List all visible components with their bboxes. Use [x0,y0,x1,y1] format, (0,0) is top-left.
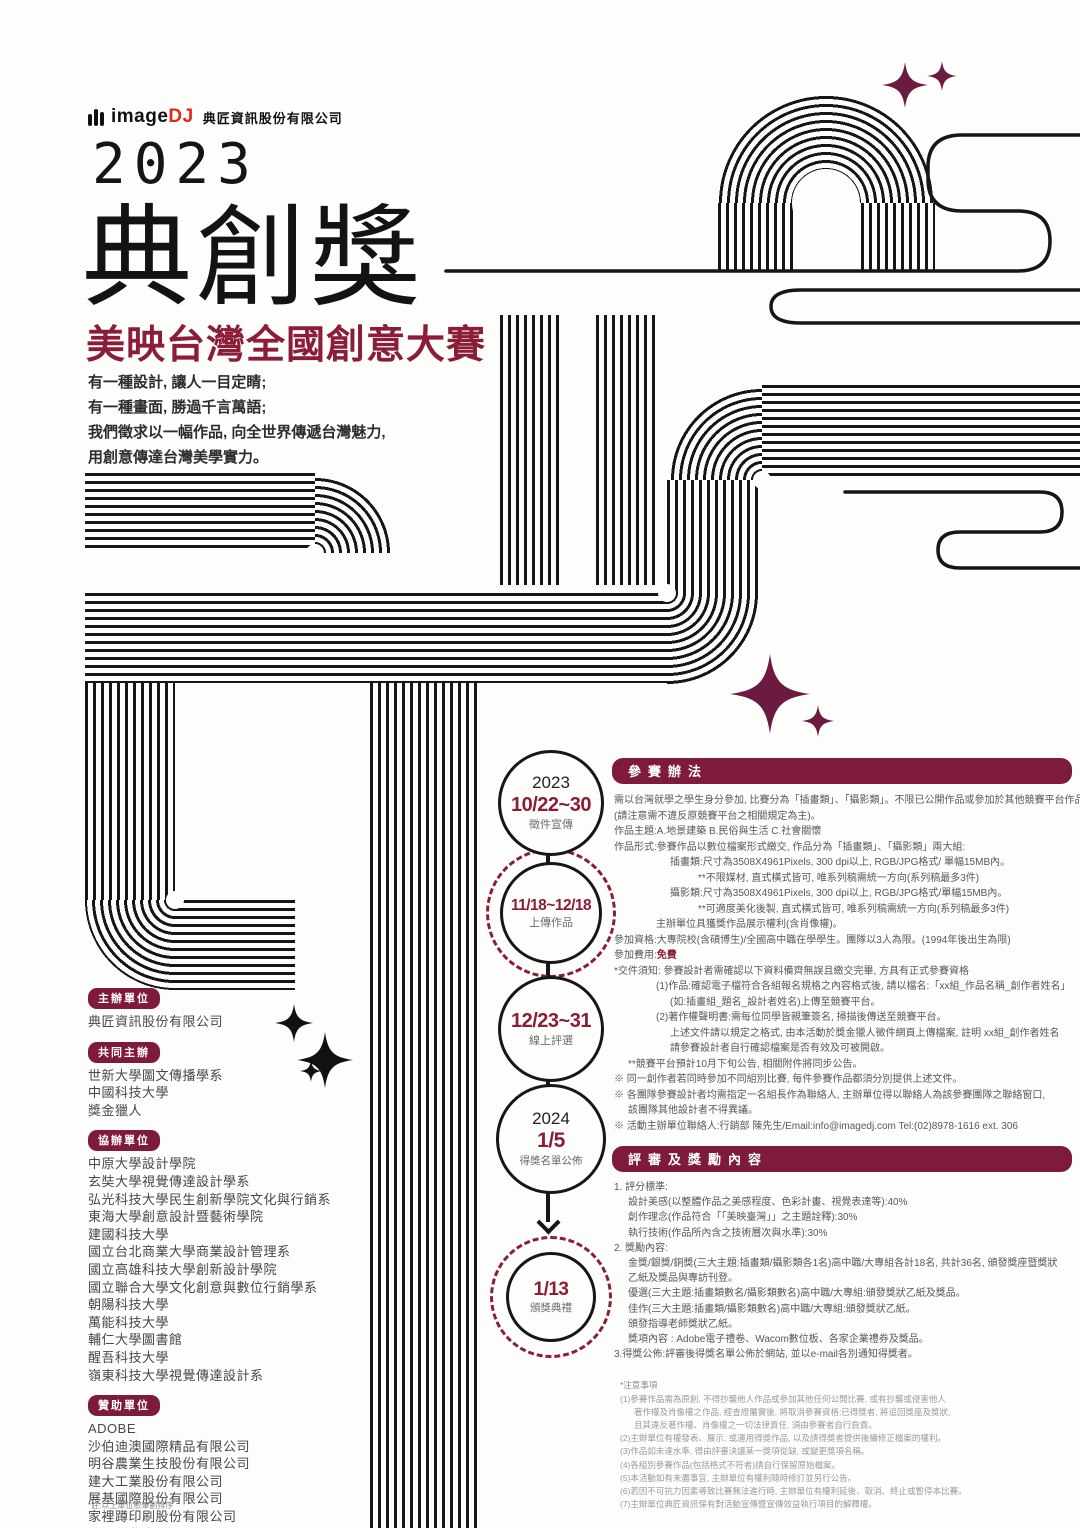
entry-line-text: 插畫類:尺寸為3508X4961Pixels, 300 dpi以上, RGB/J… [670,857,1010,868]
note-line: (2)主辦單位有權發表、展示, 或運用得獎作品, 以及請得獎者提供後續修正檔案的… [620,1432,1080,1445]
organizer-group-cohost: 共同主辦 世新大學圖文傳播學系中國科技大學獎金獵人 [88,1042,388,1120]
stripe-band-hook [175,900,295,990]
arch-hollow [792,169,860,237]
judging-line: 金獎/銀獎/銅獎(三大主題:插畫類/攝影類各1名)高中職/大專組各計18名, 共… [614,1256,1080,1271]
judging-line: 獎項內容 : Adobe電子禮卷、Wacom數位板、各家企業禮券及獎品。 [614,1332,1080,1347]
judging-line: 執行技術(作品所內含之技術層次與水準):30% [614,1226,1080,1241]
sponsor-list: ADOBE沙伯迪澳國際精品有限公司明谷農業生技股份有限公司建大工業股份有限公司展… [88,1420,388,1528]
timeline-date: 11/18~12/18 [511,896,591,915]
entry-line-text: ※ 同一創作者若同時參加不同組別比賽, 每件參賽作品都須分別提供上述文件。 [614,1074,962,1085]
entry-heading-banner: 參賽辦法 [612,758,1072,784]
sponsor-badge: 贊助單位 [88,1395,160,1416]
organizer-item: 中國科技大學 [88,1084,388,1102]
judging-line-text: 金獎/銀獎/銅獎(三大主題:插畫類/攝影類各1名)高中職/大專組各計18名, 共… [628,1258,1057,1269]
judging-line: 乙紙及獎品與專訪刊登。 [614,1271,1080,1286]
meander-top [446,135,1080,271]
note-line-text: (3)作品如未達水準, 得由評審決議某一獎項從缺, 或變更獎項名稱。 [620,1446,869,1456]
organizer-item: 沙伯迪澳國際精品有限公司 [88,1438,388,1456]
timeline-date: 1/5 [537,1128,565,1154]
entry-line-text: 請參賽設計者自行確認檔案是否有效及可被開啟。 [670,1043,890,1054]
timeline-step-5: 1/13 頒獎典禮 [506,1252,596,1342]
entry-line: **不限媒材, 直式橫式皆可, 唯系列稿需統一方向(系列稿最多3件) [614,871,1080,887]
organizer-item: 國立聯合大學文化創意與數位行銷學系 [88,1279,388,1297]
judging-line-text: 設計美感(以整體作品之美感程度、色彩計畫、視覺表達等):40% [628,1197,907,1208]
judging-line: 優選(三大主題:插畫類數名/攝影類數名)高中職/大專組:頒發獎狀乙紙及獎品。 [614,1286,1080,1301]
timeline-label: 得獎名單公佈 [520,1155,583,1169]
entry-line: 需以台灣就學之學生身分參加, 比賽分為「插畫類」、「攝影類」。不限已公開作品或參… [614,793,1080,809]
stripe-up-vertical [667,480,762,593]
entry-line-accent: 免費 [657,950,677,961]
poster-title: 典創獎 [82,196,424,323]
note-line: 且其違反著作權、肖像權之一切法律責任, 須由參賽者自行負責。 [620,1419,1080,1432]
entry-line: 上述文件請以規定之格式, 由本活動於獎金獵人徵件網頁上傳檔案, 註明 xx組_創… [614,1026,1080,1042]
entry-line: **可適度美化後製, 直式橫式皆可, 唯系列稿需統一方向(系列稿最多3件) [614,902,1080,918]
meander-right [845,492,1080,568]
note-line: 著作權及肖像權之作品, 經查證屬實後, 將取消參賽資格;已得獎者, 將追回獎座及… [620,1406,1080,1419]
note-line-text: (1)參賽作品需為原創, 不得抄襲他人作品或參加其他任何公開比賽, 或有抄襲或侵… [620,1394,946,1404]
organizer-item: 獎金獵人 [88,1102,388,1120]
meander-pill [771,290,1080,323]
coorg-list: 中原大學設計學院玄奘大學視覺傳達設計學系弘光科技大學民生創新學院文化與行銷系東海… [88,1155,388,1384]
organizer-item: 中原大學設計學院 [88,1155,388,1173]
entry-line: 作品主題:A.地景建築 B.民俗與生活 C.社會關懷 [614,824,1080,840]
judging-line-text: 獎項內容 : Adobe電子禮卷、Wacom數位板、各家企業禮券及獎品。 [628,1334,929,1345]
entry-line: 攝影類:尺寸為3508X4961Pixels, 300 dpi以上, RGB/J… [614,886,1080,902]
stripe-corner-topleft-down [315,473,395,553]
entry-line: **競賽平台預計10月下旬公告, 相關附件將同步公告。 [614,1057,1080,1073]
poster: imageDJ 典匠資訊股份有限公司 2023 典創獎 美映台灣全國創意大賽 有… [0,0,1080,1528]
entry-line-text: 參加資格:大專院校(含碩博生)/全國高中職在學學生。團隊以3人為限。(1994年… [614,935,1011,946]
entry-line: ※ 活動主辦單位聯絡人:行銷部 陳先生/Email:info@imagedj.c… [614,1119,1080,1135]
judging-line: 創作理念(作品符合「「美映臺灣」」之主題詮釋):30% [614,1210,1080,1225]
entry-line: (1)作品:確認電子檔符合各組報名規格之內容格式後, 請以檔名:「xx組_作品名… [614,979,1080,995]
sparkle-icon [802,704,834,738]
note-line: (7)主辦單位典匠資訊保有對活動宣傳暨宣傳效益執行項目的解釋權。 [620,1498,1080,1511]
organizer-group-coorg: 協辦單位 中原大學設計學院玄奘大學視覺傳達設計學系弘光科技大學民生創新學院文化與… [88,1130,388,1384]
tagline-line: 我們徵求以一幅作品, 向全世界傳遞台灣魅力, [88,420,386,445]
timeline-step-1: 2023 10/22~30 徵件宣傳 [498,750,604,856]
note-line-text: 著作權及肖像權之作品, 經查證屬實後, 將取消參賽資格;已得獎者, 將追回獎座及… [634,1407,950,1417]
poster-subtitle: 美映台灣全國創意大賽 [86,314,486,370]
entry-line-text: 需以台灣就學之學生身分參加, 比賽分為「插畫類」、「攝影類」。不限已公開作品或參… [614,795,1080,806]
entry-line-text: **競賽平台預計10月下旬公告, 相關附件將同步公告。 [628,1059,862,1070]
entry-line-text: (2)著作權聲明書:需每位同學皆親筆簽名, 掃描後傳送至競賽平台。 [656,1012,947,1023]
entry-line: 主辦單位具獲獎作品展示權利(含肖像權)。 [614,917,1080,933]
sparkle-icon [927,60,957,92]
coorg-badge: 協辦單位 [88,1130,160,1151]
judging-line-text: 1. 評分標準: [614,1182,668,1193]
turn-hollow [753,471,771,489]
entry-line-text: 該團隊其他設計者不得異議。 [628,1105,758,1116]
entry-line-text: 攝影類:尺寸為3508X4961Pixels, 300 dpi以上, RGB/J… [670,888,1007,899]
sparkle-icon [730,650,810,738]
organizer-item: 弘光科技大學民生創新學院文化與行銷系 [88,1191,388,1209]
note-line-text: (7)主辦單位典匠資訊保有對活動宣傳暨宣傳效益執行項目的解釋權。 [620,1499,877,1509]
entry-line-text: **不限媒材, 直式橫式皆可, 唯系列稿需統一方向(系列稿最多3件) [698,873,979,884]
judging-line-text: 乙紙及獎品與專訪刊登。 [628,1273,738,1284]
judging-line-text: 執行技術(作品所內含之技術層次與水準):30% [628,1228,827,1239]
timeline-label: 線上評選 [529,1034,573,1048]
timeline-step-2: 11/18~12/18 上傳作品 [500,862,602,964]
turn-hollow [306,544,324,562]
entry-line-text: ※ 活動主辦單位聯絡人:行銷部 陳先生/Email:info@imagedj.c… [614,1121,1018,1132]
entry-line: ※ 同一創作者若同時參加不同組別比賽, 每件參賽作品都須分別提供上述文件。 [614,1072,1080,1088]
host-list: 典匠資訊股份有限公司 [88,1013,388,1031]
entry-line: 該團隊其他設計者不得異議。 [614,1103,1080,1119]
entry-line: (如:插畫組_題名_設計者姓名)上傳至競賽平台。 [614,995,1080,1011]
stripe-corner-hook [85,900,175,990]
judging-line: 頒發指導老師獎狀乙紙。 [614,1317,1080,1332]
stripe-leg-a [500,315,564,585]
logo-wordmark: imageDJ [111,106,194,128]
entry-line: 參加費用:免費 [614,948,1080,964]
judging-line: 1. 評分標準: [614,1180,1080,1195]
note-line: (3)作品如未達水準, 得由評審決議某一獎項從缺, 或變更獎項名稱。 [620,1445,1080,1458]
logo-image-text: image [111,106,168,127]
host-badge: 主辦單位 [88,988,160,1009]
note-line: (6)若因不可抗力因素導致比賽無法進行時, 主辦單位有權利延後、取消、終止或暫停… [620,1485,1080,1498]
entry-line-text: *交件須知: 參賽設計者需確認以下資料備齊無誤且繳交完畢, 方具有正式參賽資格 [614,966,969,977]
note-line-text: 且其違反著作權、肖像權之一切法律責任, 須由參賽者自行負責。 [634,1420,877,1430]
organizers-footnote: *註:以上單位依筆劃排序 [88,1500,173,1511]
entry-line: ※ 各團隊參賽設計者均需指定一名組長作為聯絡人, 主辦單位得以聯絡人為該參賽團隊… [614,1088,1080,1104]
organizer-item: 國立高雄科技大學創新設計學院 [88,1261,388,1279]
entry-line: (請注意需不違反原競賽平台之相關規定為主)。 [614,809,1080,825]
note-line: (1)參賽作品需為原創, 不得抄襲他人作品或參加其他任何公開比賽, 或有抄襲或侵… [620,1393,1080,1406]
timeline-label: 上傳作品 [529,916,573,930]
entry-line: 請參賽設計者自行確認檔案是否有效及可被開啟。 [614,1041,1080,1057]
judging-line: 設計美感(以整體作品之美感程度、色彩計畫、視覺表達等):40% [614,1195,1080,1210]
entry-line-text: ※ 各團隊參賽設計者均需指定一名組長作為聯絡人, 主辦單位得以聯絡人為該參賽團隊… [614,1090,1045,1101]
note-line-text: (5)本活動如有未盡事宜, 主辦單位有權利隨時修訂並另行公告。 [620,1473,856,1483]
judging-line: 3.得獎公佈:評審後得獎名單公佈於網站, 並以e-mail各別通知得獎者。 [614,1347,1080,1362]
timeline-label: 徵件宣傳 [529,818,573,832]
entry-line-text: **可適度美化後製, 直式橫式皆可, 唯系列稿需統一方向(系列稿最多3件) [698,904,1009,915]
organizer-item: 朝陽科技大學 [88,1296,388,1314]
stripe-arch-right [826,95,935,203]
organizer-item: 玄奘大學視覺傳達設計學系 [88,1173,388,1191]
timeline-year: 2023 [532,774,570,793]
judging-line: 佳作(三大主題:插畫類/攝影類數名)高中職/大專組:頒發獎狀乙紙。 [614,1302,1080,1317]
entry-line: 插畫類:尺寸為3508X4961Pixels, 300 dpi以上, RGB/J… [614,855,1080,871]
hero-year: 2023 [92,132,259,197]
tagline-line: 用創意傳達台灣美學實力。 [88,445,386,470]
stripe-corner-up-right [667,385,762,480]
entry-lines: 需以台灣就學之學生身分參加, 比賽分為「插畫類」、「攝影類」。不限已公開作品或參… [614,793,1080,1134]
organizer-item: 典匠資訊股份有限公司 [88,1013,388,1031]
organizer-item: 東海大學創意設計暨藝術學院 [88,1208,388,1226]
timeline-step-4: 2024 1/5 得獎名單公佈 [496,1084,606,1194]
sparkle-icon [882,60,928,110]
stripe-band-top-right [762,385,1080,480]
organizers-column: 主辦單位 典匠資訊股份有限公司 共同主辦 世新大學圖文傳播學系中國科技大學獎金獵… [88,988,388,1528]
note-line: (5)本活動如有未盡事宜, 主辦單位有權利隨時修訂並另行公告。 [620,1472,1080,1485]
notes-block: *注意事項 (1)參賽作品需為原創, 不得抄襲他人作品或參加其他任何公開比賽, … [620,1379,1080,1511]
timeline-date: 12/23~31 [511,1009,591,1034]
turn-hollow [658,584,676,602]
organizer-group-host: 主辦單位 典匠資訊股份有限公司 [88,988,388,1031]
note-line-text: (2)主辦單位有權發表、展示, 或運用得獎作品, 以及請得獎者提供後續修正檔案的… [620,1433,946,1443]
timeline-date: 1/13 [534,1278,569,1302]
organizer-item: ADOBE [88,1420,388,1438]
entry-line: *交件須知: 參賽設計者需確認以下資料備齊無誤且繳交完畢, 方具有正式參賽資格 [614,964,1080,980]
company-name: 典匠資訊股份有限公司 [203,108,343,127]
entry-line-text: 參加費用: [614,950,657,961]
cohost-badge: 共同主辦 [88,1042,160,1063]
judging-line-text: 創作理念(作品符合「「美映臺灣」」之主題詮釋):30% [628,1212,857,1223]
entry-line: (2)著作權聲明書:需每位同學皆親筆簽名, 掃描後傳送至競賽平台。 [614,1010,1080,1026]
entry-line-text: (1)作品:確認電子檔符合各組報名規格之內容格式後, 請以檔名:「xx組_作品名… [656,981,1070,992]
organizer-item: 嶺東科技大學視覺傳達設計系 [88,1367,388,1385]
judging-lines: 1. 評分標準:設計美感(以整體作品之美感程度、色彩計畫、視覺表達等):40%創… [614,1180,1080,1362]
stripe-leg-b [596,315,660,585]
stripe-arch-leg-right [861,203,935,272]
notes-heading: *注意事項 [620,1379,1080,1392]
entry-line-text: (請注意需不違反原競賽平台之相關規定為主)。 [614,811,821,822]
judging-line: 2. 獎勵內容: [614,1241,1080,1256]
imagedj-logo-icon [88,109,104,126]
organizer-item: 建大工業股份有限公司 [88,1473,388,1491]
entry-line-text: 上述文件請以規定之格式, 由本活動於獎金獵人徵件網頁上傳檔案, 註明 xx組_創… [670,1028,1059,1039]
entry-line-text: 作品主題:A.地景建築 B.民俗與生活 C.社會關懷 [614,826,821,837]
judging-line-text: 3.得獎公佈:評審後得獎名單公佈於網站, 並以e-mail各別通知得獎者。 [614,1349,918,1360]
note-line-text: (6)若因不可抗力因素導致比賽無法進行時, 主辦單位有權利延後、取消、終止或暫停… [620,1486,967,1496]
turn-hollow [166,891,184,909]
entry-line: 參加資格:大專院校(含碩博生)/全國高中職在學學生。團隊以3人為限。(1994年… [614,933,1080,949]
organizer-item: 輔仁大學圖書館 [88,1331,388,1349]
organizer-item: 國立台北商業大學商業設計管理系 [88,1243,388,1261]
entry-line: 作品形式:參賽作品以數位檔案形式繳交, 作品分為「插畫類」、「攝影類」兩大組: [614,840,1080,856]
timeline-label: 頒獎典禮 [530,1302,572,1316]
organizer-item: 萬能科技大學 [88,1314,388,1332]
entry-line-text: (如:插畫組_題名_設計者姓名)上傳至競賽平台。 [670,997,881,1008]
timeline-step-3: 12/23~31 線上評選 [498,976,604,1082]
judging-heading-banner: 評審及獎勵內容 [612,1146,1072,1172]
timeline-arrow-icon [536,1210,560,1234]
cohost-list: 世新大學圖文傳播學系中國科技大學獎金獵人 [88,1067,388,1120]
organizer-item: 明谷農業生技股份有限公司 [88,1455,388,1473]
organizer-item: 世新大學圖文傳播學系 [88,1067,388,1085]
tagline-line: 有一種設計, 讓人一目定睛; [88,370,386,395]
judging-line-text: 頒發指導老師獎狀乙紙。 [628,1319,738,1330]
logo-dj-text: DJ [168,106,193,127]
judging-line-text: 2. 獎勵內容: [614,1243,668,1254]
entry-line-text: 主辦單位具獲獎作品展示權利(含肖像權)。 [656,919,843,930]
brand-logo: imageDJ 典匠資訊股份有限公司 [88,106,343,128]
timeline-year: 2024 [532,1110,570,1129]
rules-column: 參賽辦法 需以台灣就學之學生身分參加, 比賽分為「插畫類」、「攝影類」。不限已公… [612,758,1080,1511]
judging-line-text: 佳作(三大主題:插畫類/攝影類數名)高中職/大專組:頒發獎狀乙紙。 [628,1304,916,1315]
tagline-line: 有一種畫面, 勝過千言萬語; [88,395,386,420]
stripe-band-mid [85,593,667,683]
note-line-text: (4)各組別參賽作品(包括格式不符者)請自行保留原始檔案。 [620,1460,840,1470]
note-line: (4)各組別參賽作品(包括格式不符者)請自行保留原始檔案。 [620,1459,1080,1472]
stripe-corner-mid-up [667,593,762,688]
timeline-date: 10/22~30 [511,793,591,818]
notes-lines: (1)參賽作品需為原創, 不得抄襲他人作品或參加其他任何公開比賽, 或有抄襲或侵… [620,1393,1080,1512]
stripe-left-vertical [85,683,175,900]
stripe-arch-leg-left [718,203,793,272]
stripe-arch-left [718,95,826,203]
stripe-band-top-left [85,473,315,553]
organizer-item: 建國科技大學 [88,1226,388,1244]
tagline: 有一種設計, 讓人一目定睛;有一種畫面, 勝過千言萬語;我們徵求以一幅作品, 向… [88,370,386,470]
organizer-item: 醒吾科技大學 [88,1349,388,1367]
entry-line-text: 作品形式:參賽作品以數位檔案形式繳交, 作品分為「插畫類」、「攝影類」兩大組: [614,842,965,853]
judging-line-text: 優選(三大主題:插畫類數名/攝影類數名)高中職/大專組:頒發獎狀乙紙及獎品。 [628,1288,966,1299]
